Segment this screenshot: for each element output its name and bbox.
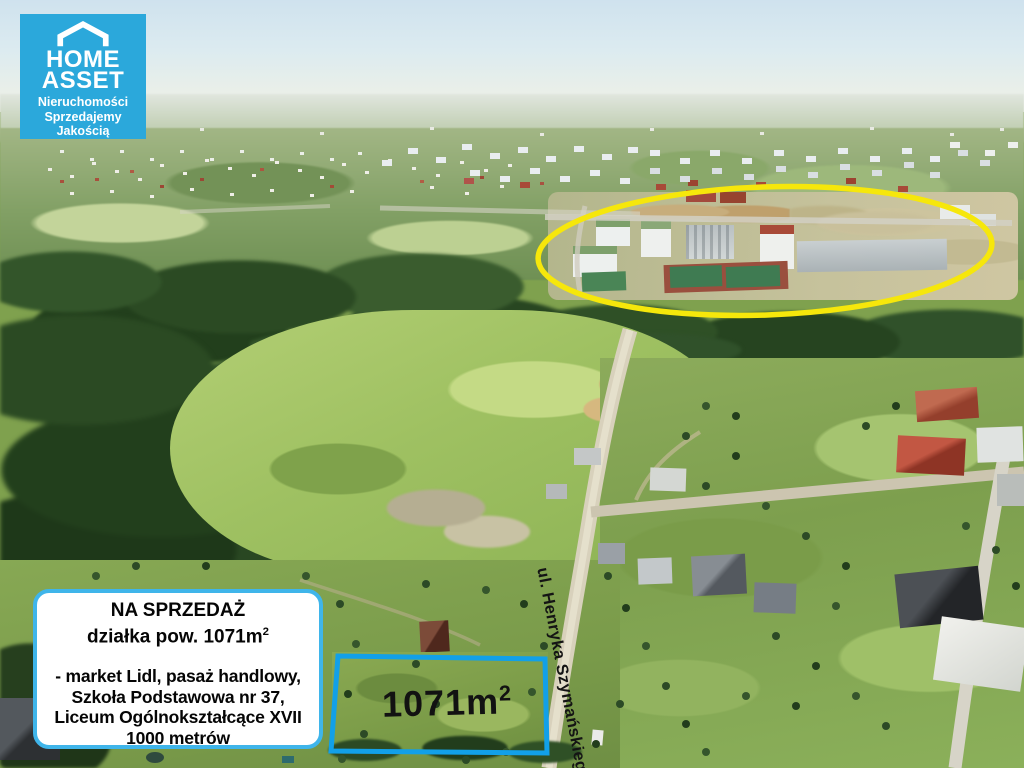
- listing-feature: Szkoła Podstawowa nr 37,: [37, 687, 319, 708]
- scattered-trees: [0, 0, 8, 8]
- listing-area-text: działka pow. 1071m: [87, 626, 263, 647]
- house: [997, 474, 1024, 506]
- logo-tagline: Nieruchomości Sprzedajemy Jakością: [38, 95, 128, 139]
- plot-area-value: 1071m: [381, 681, 499, 725]
- logo-tagline-line: Sprzedajemy: [38, 110, 128, 125]
- house: [753, 582, 796, 613]
- car: [591, 730, 603, 746]
- plot-area-label: 1071m2: [381, 680, 512, 725]
- house-red-roof: [896, 435, 966, 476]
- apartment-block: [720, 192, 746, 203]
- listing-feature: Liceum Ogólnokształcące XVII: [37, 707, 319, 728]
- farm-shed: [650, 467, 687, 491]
- listing-area-line: działka pow. 1071m2: [37, 622, 319, 648]
- tree-row: [315, 730, 585, 768]
- school-building: [641, 221, 671, 257]
- tennis-court: [670, 265, 723, 288]
- house-red-roof: [915, 387, 979, 422]
- roof-path: [60, 24, 106, 46]
- listing-info-box: NA SPRZEDAŻ działka pow. 1071m2 - market…: [33, 589, 323, 749]
- dirt-field: [790, 203, 960, 243]
- plot-area-sup: 2: [499, 680, 513, 705]
- house-roof-icon: [50, 21, 116, 47]
- school-building: [596, 219, 630, 246]
- listing-area-sup: 2: [263, 626, 269, 638]
- house: [976, 426, 1023, 463]
- sports-hall: [686, 225, 734, 259]
- farm-shed: [546, 484, 567, 499]
- logo-tagline-line: Nieruchomości: [38, 95, 128, 110]
- shed-brown-roof: [419, 620, 450, 652]
- house-dark-roof: [894, 566, 983, 628]
- house: [598, 543, 625, 564]
- logo-name-asset: ASSET: [42, 70, 125, 91]
- house: [970, 214, 996, 226]
- aerial-photo: ul. Henryka Szymańskiego 1071m2 NA SPRZE…: [0, 0, 1024, 768]
- logo-tagline-line: Jakością: [38, 124, 128, 139]
- brand-logo: HOME ASSET Nieruchomości Sprzedajemy Jak…: [20, 14, 146, 139]
- house: [691, 554, 747, 597]
- apartment-block: [686, 190, 716, 202]
- pool: [282, 756, 294, 763]
- tennis-court: [726, 265, 781, 288]
- house: [638, 557, 673, 584]
- house-white-roof: [933, 616, 1024, 692]
- sports-field: [582, 271, 627, 292]
- warehouse: [797, 239, 948, 273]
- farm-shed: [574, 448, 601, 465]
- trampoline: [146, 752, 164, 763]
- listing-title: NA SPRZEDAŻ: [37, 601, 319, 622]
- listing-feature: 1000 metrów: [37, 728, 319, 749]
- listing-feature: - market Lidl, pasaż handlowy,: [37, 666, 319, 687]
- bare-ground-patch: [368, 470, 538, 565]
- spacer: [37, 647, 319, 666]
